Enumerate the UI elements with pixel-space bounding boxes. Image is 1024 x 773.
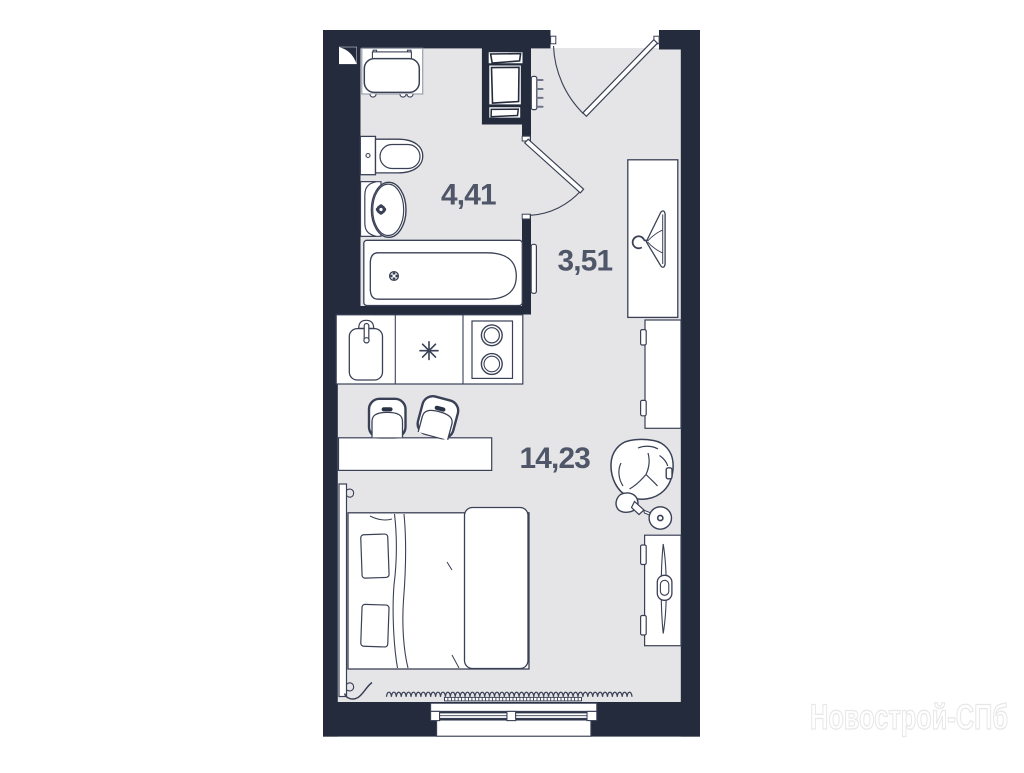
svg-text:Новострой-СПб: Новострой-СПб bbox=[810, 698, 1008, 737]
svg-text:14,23: 14,23 bbox=[520, 442, 591, 475]
svg-text:3,51: 3,51 bbox=[558, 245, 613, 278]
svg-text:4,41: 4,41 bbox=[441, 179, 496, 212]
